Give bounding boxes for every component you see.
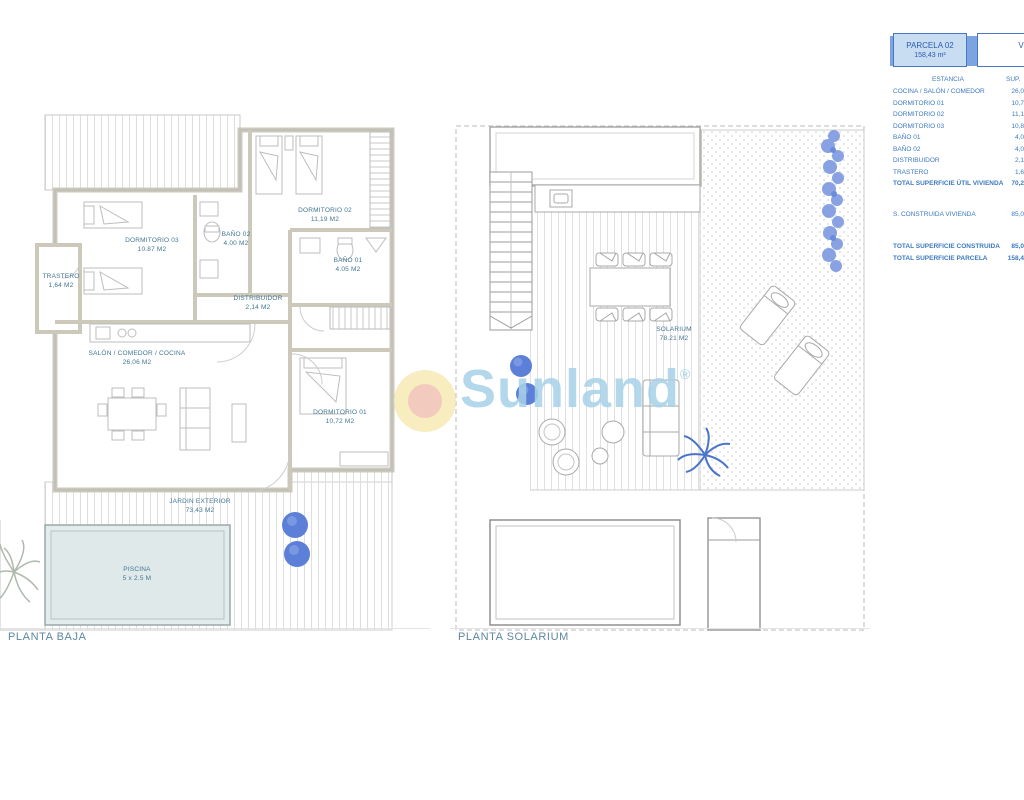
table-row: BAÑO 024,0 xyxy=(893,146,1024,153)
palm-tree-grey xyxy=(0,540,40,602)
room-label-distribuidor: DISTRIBUIDOR 2,14 M2 xyxy=(218,294,298,312)
pool-outline xyxy=(490,520,680,625)
room-label-jardin: JARDIN EXTERIOR 73,43 M2 xyxy=(140,497,260,515)
plan-title-solarium: PLANTA SOLARIUM xyxy=(458,631,569,643)
kitchen-counter xyxy=(90,324,250,342)
parcela-box: PARCELA 02 158,43 m² xyxy=(893,33,967,67)
room-label-dormitorio-02: DORMITORIO 02 11,19 M2 xyxy=(265,206,385,224)
table-row: BAÑO 014,0 xyxy=(893,134,1024,141)
table-row-total-util: TOTAL SUPERFICIE ÚTIL VIVIENDA70,2 xyxy=(893,180,1024,187)
table-row: COCINA / SALÓN / COMEDOR26,0 xyxy=(893,88,1024,95)
floorplan-sheet: TRASTERO 1,64 M2 DORMITORIO 03 10.87 M2 … xyxy=(0,0,1024,800)
room-label-bano-01: BAÑO 01 4.05 M2 xyxy=(308,256,388,274)
divider-right xyxy=(450,628,870,629)
annex-structure xyxy=(708,518,760,630)
planta-baja-drawing xyxy=(0,110,440,632)
column-header-sup: SUP. xyxy=(1006,76,1020,83)
divider-left xyxy=(0,628,430,629)
room-label-solarium: SOLARIUM 78.21 M2 xyxy=(614,325,734,343)
table-row-total-parcela: TOTAL SUPERFICIE PARCELA158,4 xyxy=(893,255,1024,262)
table-row-construida: S. CONSTRUIDA VIVIENDA85,0 xyxy=(893,211,1024,218)
dining-set xyxy=(590,253,672,321)
planta-solarium-drawing xyxy=(450,110,870,632)
room-label-trastero: TRASTERO 1,64 M2 xyxy=(21,272,101,290)
room-label-bano-02: BAÑO 02 4.00 M2 xyxy=(196,230,276,248)
plan-title-baja: PLANTA BAJA xyxy=(8,631,87,643)
staircase xyxy=(490,172,532,330)
column-header-estancia: ESTANCIA xyxy=(908,76,988,83)
room-label-dormitorio-01: DORMITORIO 01 10,72 M2 xyxy=(280,408,400,426)
room-label-piscina: PISCINA 5 x 2.5 M xyxy=(97,565,177,583)
table-row: DORMITORIO 0310,8 xyxy=(893,123,1024,130)
table-row: DISTRIBUIDOR2,1 xyxy=(893,157,1024,164)
room-label-salon: SALÓN / COMEDOR / COCINA 26,06 M2 xyxy=(57,349,217,367)
table-row-total-construida: TOTAL SUPERFICIE CONSTRUIDA85,0 xyxy=(893,243,1024,250)
counter xyxy=(535,185,700,212)
table-row: DORMITORIO 0110,7 xyxy=(893,100,1024,107)
table-row: TRASTERO1,6 xyxy=(893,169,1024,176)
table-row: DORMITORIO 0211,1 xyxy=(893,111,1024,118)
vivienda-box: VIVIENDA 85.00 xyxy=(977,33,1024,67)
room-label-dormitorio-03: DORMITORIO 03 10.87 M2 xyxy=(92,236,212,254)
